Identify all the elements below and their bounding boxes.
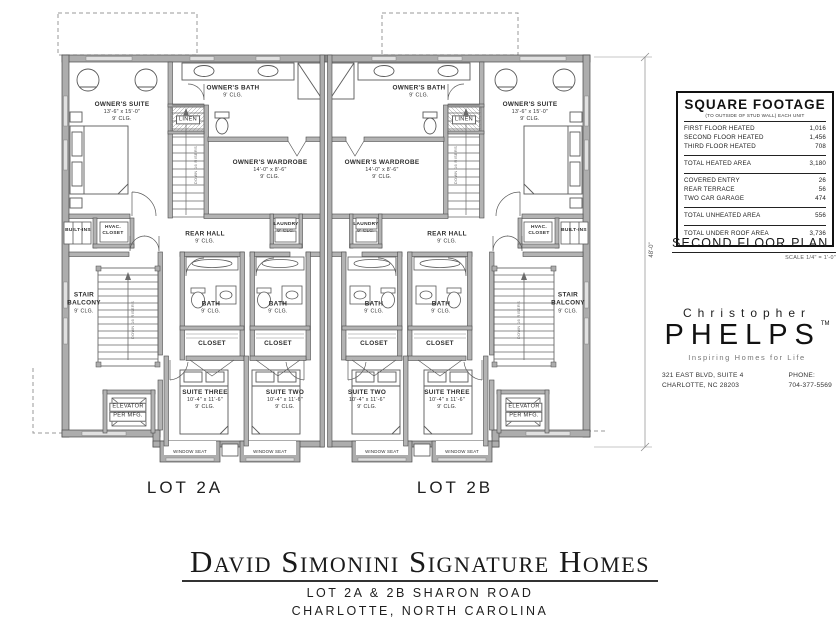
label-linen-a: LINEN [176, 115, 200, 124]
room-name: BUILT-INS [561, 228, 587, 234]
room-name2: PER MFG. [109, 412, 146, 421]
label-elevator-b: ELEVATOR PER MFG. [505, 403, 542, 422]
room-clg: 9' CLG. [424, 404, 470, 411]
room-clg: 9' CLG. [393, 93, 446, 100]
room-name: BATH [201, 300, 221, 308]
plan-title: SECOND FLOOR PLAN [672, 236, 836, 253]
row-value: 56 [819, 186, 826, 195]
label-suite-three-a: SUITE THREE 10'-4" x 11'-6" 9' CLG. [182, 389, 228, 411]
sheet-title-block: David Simonini Signature Homes LOT 2A & … [0, 546, 840, 618]
room-name: OWNER'S BATH [207, 84, 260, 92]
row-value: 556 [815, 212, 826, 221]
label-owners-suite-b: OWNER'S SUITE 13'-6" x 15'-0" 9' CLG. [503, 101, 558, 123]
room-name: REAR HALL [427, 230, 467, 238]
label-owners-wardrobe-a: OWNER'S WARDROBE 14'-0" x 8'-6" 9' CLG. [233, 159, 308, 181]
room-name: SUITE TWO [348, 389, 386, 397]
room-name: OWNER'S WARDROBE [345, 159, 420, 167]
label-suite-two-a: SUITE TWO 10'-4" x 11'-6" 9' CLG. [266, 389, 304, 411]
room-name: BATH [364, 300, 384, 308]
room-name2: CLOSET [528, 231, 549, 237]
owners-suite-furniture [70, 69, 157, 208]
label-linen-b: LINEN [452, 115, 476, 124]
party-wall [320, 55, 332, 447]
unheated-rows: COVERED ENTRY 26 REAR TERRACE 56 TWO CAR… [684, 173, 826, 207]
table-row: THIRD FLOOR HEATED 708 [684, 143, 826, 152]
company-title: David Simonini Signature Homes [182, 546, 658, 582]
room-name: BATH [431, 300, 451, 308]
row-value: 1,016 [810, 125, 826, 134]
room-clg: 9' CLG. [353, 228, 378, 234]
label-closet-b1: CLOSET [426, 340, 454, 348]
label-suite-two-b: SUITE TWO 10'-4" x 11'-6" 9' CLG. [348, 389, 386, 411]
square-footage-table: SQUARE FOOTAGE (TO OUTSIDE OF STUD WALL)… [676, 91, 834, 247]
project-city: CHARLOTTE, NORTH CAROLINA [0, 604, 840, 618]
stair-note-a-main: DOWN 16 RISERS [194, 146, 198, 184]
architect-phone: PHONE: 704-377-5569 [789, 371, 832, 391]
row-label: FIRST FLOOR HEATED [684, 125, 755, 134]
row-label: REAR TERRACE [684, 186, 735, 195]
row-label: TWO CAR GARAGE [684, 195, 744, 204]
table-row: REAR TERRACE 56 [684, 186, 826, 195]
room-name: WINDOW SEAT [173, 449, 207, 455]
stair-note-b-main: DOWN 16 RISERS [454, 146, 458, 184]
room-name: SUITE THREE [182, 389, 228, 397]
label-bath-b1: BATH 9' CLG. [431, 300, 451, 315]
room-name: STAIR [551, 291, 585, 299]
room-clg: 9' CLG. [185, 239, 225, 246]
label-window-seat-b1: WINDOW SEAT [365, 449, 399, 455]
label-owners-bath-b: OWNER'S BATH 9' CLG. [393, 84, 446, 99]
room-clg: 9' CLG. [95, 116, 150, 123]
label-owners-wardrobe-b: OWNER'S WARDROBE 14'-0" x 8'-6" 9' CLG. [345, 159, 420, 181]
square-footage-title: SQUARE FOOTAGE [684, 97, 826, 112]
room-dim: 10'-4" x 11'-6" [424, 397, 470, 404]
row-value: 474 [815, 195, 826, 204]
architect-last-name: PHELPSTM [658, 321, 836, 350]
balcony-stair [98, 268, 158, 366]
architect-first-name: Christopher [658, 306, 836, 320]
stair-note-b-balcony: DOWN 16 RISERS [517, 301, 521, 339]
row-label: TOTAL UNHEATED AREA [684, 212, 760, 221]
row-value: 26 [819, 177, 826, 186]
plan-scale: SCALE 1/4" = 1'-0" [672, 255, 836, 261]
room-dim: 13'-6" x 15'-0" [95, 109, 150, 116]
room-name: REAR HALL [185, 230, 225, 238]
row-value: 1,456 [810, 134, 826, 143]
utility-fixtures [64, 218, 296, 244]
label-owners-suite-a: OWNER'S SUITE 13'-6" x 15'-0" 9' CLG. [95, 101, 150, 123]
label-rear-hall-a: REAR HALL 9' CLG. [185, 230, 225, 245]
table-row: TWO CAR GARAGE 474 [684, 195, 826, 204]
phone-number: 704-377-5569 [789, 381, 832, 391]
label-window-seat-a2: WINDOW SEAT [253, 449, 287, 455]
total-unheated-row: TOTAL UNHEATED AREA 556 [684, 207, 826, 225]
architect-contact: 321 EAST BLVD, SUITE 4 CHARLOTTE, NC 282… [658, 371, 836, 391]
row-label: COVERED ENTRY [684, 177, 740, 186]
lot-2a-label: LOT 2A [147, 478, 223, 498]
stair-note-a-balcony: DOWN 16 RISERS [131, 301, 135, 339]
label-bath-a1: BATH 9' CLG. [201, 300, 221, 315]
overall-height-dimension: 48'-0" [649, 242, 655, 257]
room-clg: 9' CLG. [503, 116, 558, 123]
label-window-seat-b2: WINDOW SEAT [445, 449, 479, 455]
total-heated-row: TOTAL HEATED AREA 3,180 [684, 155, 826, 173]
architect-tagline: Inspiring Homes for Life [658, 353, 836, 362]
dimension-line [594, 53, 652, 451]
heated-rows: FIRST FLOOR HEATED 1,016 SECOND FLOOR HE… [684, 121, 826, 155]
closet-shelves [186, 334, 304, 338]
row-label: SECOND FLOOR HEATED [684, 134, 764, 143]
room-name2: BALCONY [67, 300, 101, 308]
room-name: BUILT-INS [65, 228, 91, 234]
label-suite-three-b: SUITE THREE 10'-4" x 11'-6" 9' CLG. [424, 389, 470, 411]
room-name: WINDOW SEAT [365, 449, 399, 455]
label-closet-b2: CLOSET [360, 340, 388, 348]
room-name: OWNER'S SUITE [503, 101, 558, 109]
room-dim: 14'-0" x 8'-6" [345, 167, 420, 174]
label-window-seat-a1: WINDOW SEAT [173, 449, 207, 455]
room-name: OWNER'S BATH [393, 84, 446, 92]
label-bath-a2: BATH 9' CLG. [268, 300, 288, 315]
trademark-symbol: TM [821, 321, 830, 327]
room-dim: 10'-4" x 11'-6" [182, 397, 228, 404]
room-name: STAIR [67, 291, 101, 299]
room-name2: PER MFG. [505, 412, 542, 421]
room-clg: 9' CLG. [348, 404, 386, 411]
project-address: LOT 2A & 2B SHARON ROAD [0, 586, 840, 600]
room-name: LINEN [452, 115, 476, 124]
label-laundry-a: LAUNDRY 9' CLG. [273, 222, 298, 234]
room-clg: 9' CLG. [233, 174, 308, 181]
room-name: ELEVATOR [109, 403, 146, 412]
room-name: SUITE THREE [424, 389, 470, 397]
room-name: WINDOW SEAT [253, 449, 287, 455]
room-name: SUITE TWO [266, 389, 304, 397]
room-clg: 9' CLG. [266, 404, 304, 411]
room-clg: 9' CLG. [427, 239, 467, 246]
room-name2: BALCONY [551, 300, 585, 308]
phone-label: PHONE: [789, 371, 832, 381]
label-stair-balcony-b: STAIR BALCONY 9' CLG. [551, 291, 585, 314]
room-name: CLOSET [264, 340, 292, 348]
room-name: ELEVATOR [505, 403, 542, 412]
label-elevator-a: ELEVATOR PER MFG. [109, 403, 146, 422]
room-clg: 9' CLG. [273, 228, 298, 234]
room-clg: 9' CLG. [551, 308, 585, 315]
room-name: OWNER'S SUITE [95, 101, 150, 109]
label-closet-a1: CLOSET [198, 340, 226, 348]
room-name: OWNER'S WARDROBE [233, 159, 308, 167]
room-dim: 10'-4" x 11'-6" [348, 397, 386, 404]
room-name: CLOSET [426, 340, 454, 348]
architect-address: 321 EAST BLVD, SUITE 4 CHARLOTTE, NC 282… [662, 371, 743, 391]
room-name2: CLOSET [102, 231, 123, 237]
row-value: 708 [815, 143, 826, 152]
room-clg: 9' CLG. [201, 309, 221, 316]
room-clg: 9' CLG. [67, 308, 101, 315]
label-bath-b2: BATH 9' CLG. [364, 300, 384, 315]
lot-2b-label: LOT 2B [417, 478, 493, 498]
architect-logo-block: Christopher PHELPSTM Inspiring Homes for… [658, 306, 836, 391]
drawing-sheet: OWNER'S SUITE 13'-6" x 15'-0" 9' CLG. OW… [0, 0, 840, 630]
table-row: SECOND FLOOR HEATED 1,456 [684, 134, 826, 143]
room-name: BATH [268, 300, 288, 308]
square-footage-subtitle: (TO OUTSIDE OF STUD WALL) EACH UNIT [684, 113, 826, 118]
room-clg: 9' CLG. [207, 93, 260, 100]
label-rear-hall-b: REAR HALL 9' CLG. [427, 230, 467, 245]
room-clg: 9' CLG. [364, 309, 384, 316]
room-clg: 9' CLG. [182, 404, 228, 411]
room-dim: 14'-0" x 8'-6" [233, 167, 308, 174]
room-clg: 9' CLG. [431, 309, 451, 316]
row-value: 3,180 [810, 160, 826, 169]
label-built-ins-b: BUILT-INS [561, 228, 587, 234]
label-stair-balcony-a: STAIR BALCONY 9' CLG. [67, 291, 101, 314]
label-owners-bath-a: OWNER'S BATH 9' CLG. [207, 84, 260, 99]
address-line-1: 321 EAST BLVD, SUITE 4 [662, 371, 743, 381]
plan-title-block: SECOND FLOOR PLAN SCALE 1/4" = 1'-0" [672, 236, 836, 261]
address-line-2: CHARLOTTE, NC 28203 [662, 381, 743, 391]
room-name: WINDOW SEAT [445, 449, 479, 455]
room-name: CLOSET [360, 340, 388, 348]
row-label: THIRD FLOOR HEATED [684, 143, 756, 152]
room-dim: 13'-6" x 15'-0" [503, 109, 558, 116]
row-label: TOTAL HEATED AREA [684, 160, 751, 169]
label-closet-a2: CLOSET [264, 340, 292, 348]
room-name: CLOSET [198, 340, 226, 348]
room-name: LINEN [176, 115, 200, 124]
label-hvac-a: HVAC. CLOSET [102, 225, 123, 237]
table-row: COVERED ENTRY 26 [684, 177, 826, 186]
room-clg: 9' CLG. [345, 174, 420, 181]
room-dim: 10'-4" x 11'-6" [266, 397, 304, 404]
architect-last-name-text: PHELPS [664, 319, 820, 351]
label-built-ins-a: BUILT-INS [65, 228, 91, 234]
label-hvac-b: HVAC. CLOSET [528, 225, 549, 237]
room-clg: 9' CLG. [268, 309, 288, 316]
label-laundry-b: LAUNDRY 9' CLG. [353, 222, 378, 234]
table-row: FIRST FLOOR HEATED 1,016 [684, 125, 826, 134]
